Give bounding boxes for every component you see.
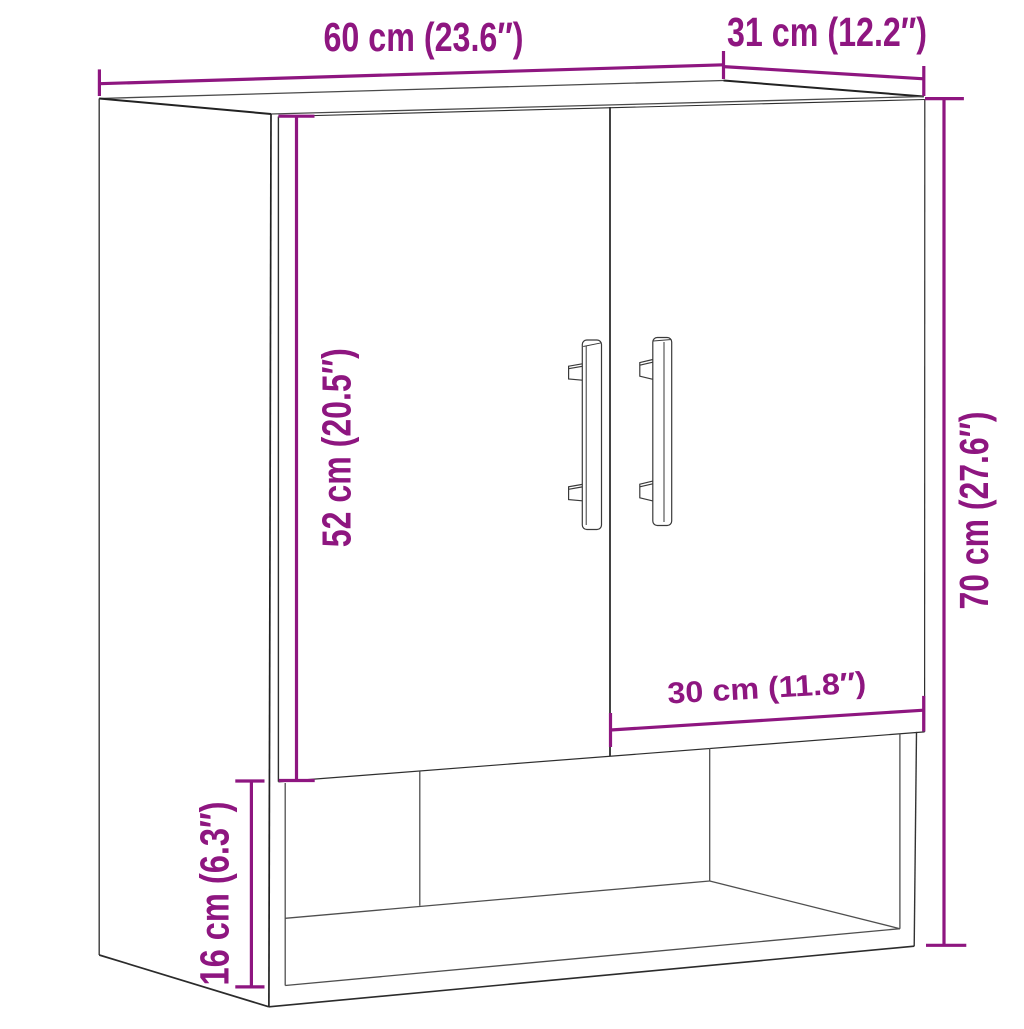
svg-text:52 cm (20.5″): 52 cm (20.5″) — [314, 348, 360, 547]
svg-text:60 cm (23.6″): 60 cm (23.6″) — [324, 14, 524, 60]
svg-text:31 cm (12.2″): 31 cm (12.2″) — [727, 9, 927, 55]
svg-text:16 cm (6.3″): 16 cm (6.3″) — [192, 802, 238, 986]
svg-text:70 cm (27.6″): 70 cm (27.6″) — [951, 412, 997, 610]
